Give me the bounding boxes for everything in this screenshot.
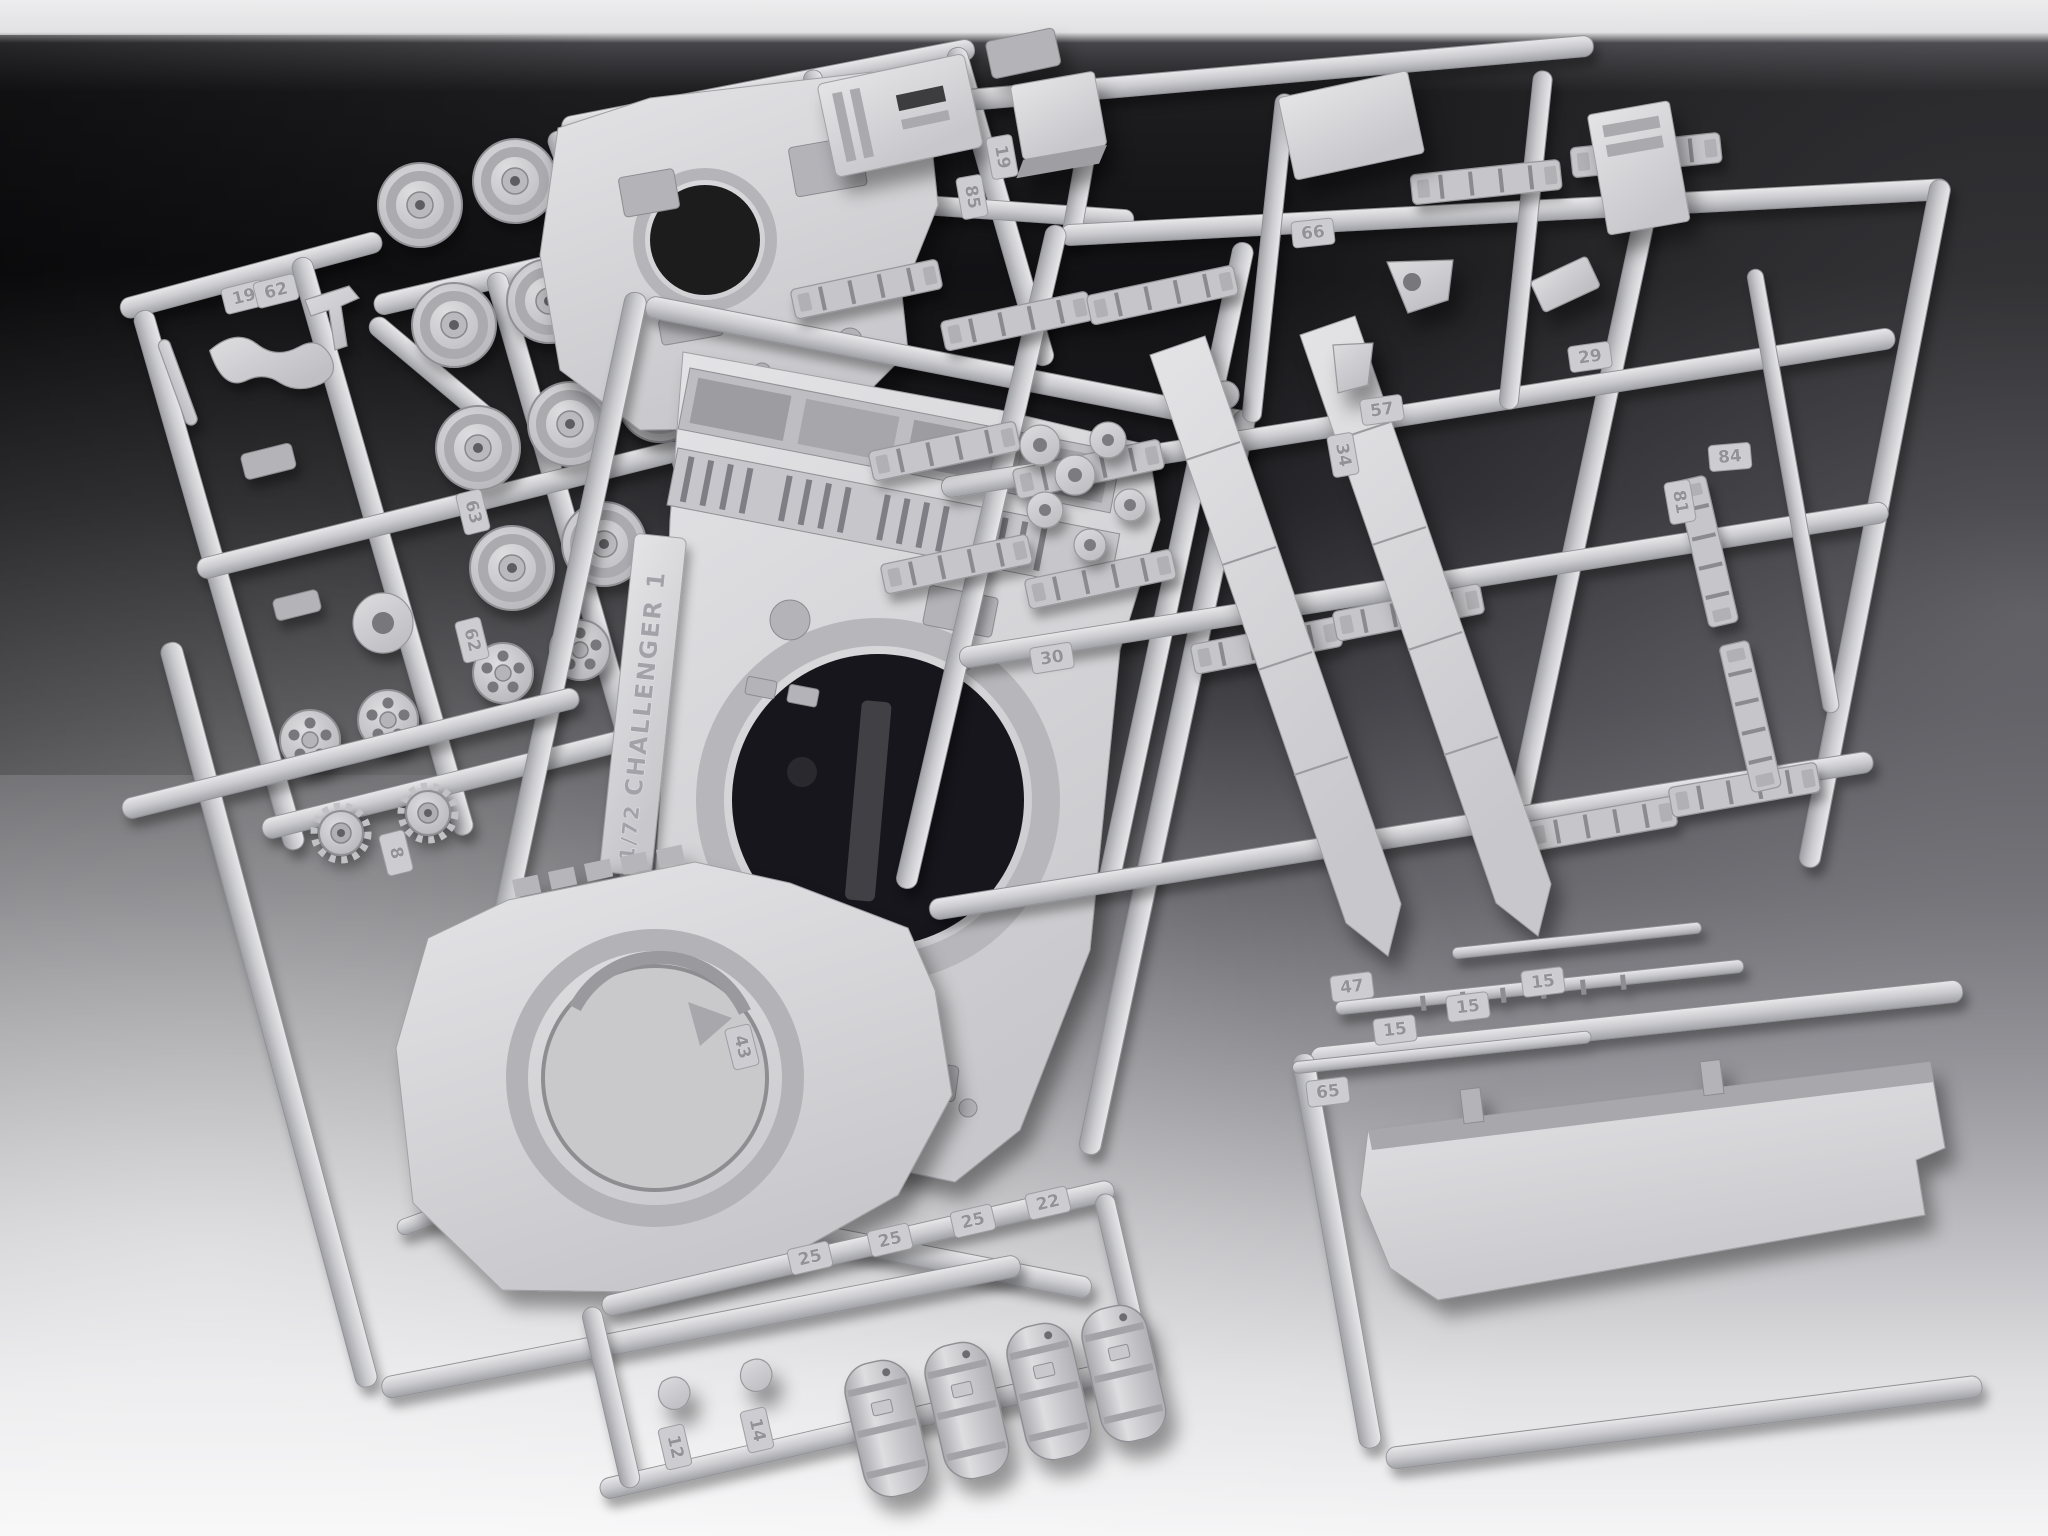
part-number-text: 47 <box>1339 976 1365 999</box>
part-number-tag: 84 <box>1708 442 1752 472</box>
part-number-tag: 29 <box>1567 341 1612 373</box>
part-number-text: 30 <box>1039 646 1066 669</box>
hub-part-hole <box>372 612 394 634</box>
part-number-text: 84 <box>1717 446 1742 468</box>
road-wheel <box>412 283 496 367</box>
part-number-tag: 47 <box>1330 972 1375 1003</box>
part-number-text: 29 <box>1577 345 1603 368</box>
part-number-text: 81 <box>1668 489 1692 516</box>
part-number-tag: 15 <box>1446 992 1491 1023</box>
bracket-part <box>1333 343 1373 393</box>
road-wheel <box>436 406 520 490</box>
photo-stage: CHALLENGER 1 1/72 <box>0 0 2048 1536</box>
clamp-part <box>658 1377 690 1410</box>
part-number-tag: 15 <box>1521 967 1566 998</box>
part-number-text: 85 <box>960 184 984 211</box>
belly-panel-lug <box>1460 1088 1484 1124</box>
belly-panel-lug <box>1700 1060 1724 1096</box>
part-number-text: 65 <box>1315 1081 1341 1104</box>
part-number-text: 66 <box>1300 222 1326 244</box>
part-number-tag: 65 <box>1306 1077 1351 1108</box>
sprue-photo: CHALLENGER 1 1/72 <box>0 0 2048 1536</box>
road-wheel <box>473 139 557 223</box>
part-number-text: 15 <box>1530 971 1556 994</box>
inner-structure-hole <box>787 757 817 787</box>
part-number-tag: 66 <box>1291 218 1335 248</box>
part-number-tag: 15 <box>1373 1015 1418 1046</box>
part-number-tag: 57 <box>1359 394 1404 426</box>
clamp-part <box>740 1359 772 1392</box>
part-number-text: 19 <box>990 144 1014 171</box>
part-number-text: 34 <box>1331 442 1355 469</box>
part-number-text: 15 <box>1382 1019 1408 1042</box>
road-wheel <box>378 163 462 247</box>
road-wheel <box>470 526 554 610</box>
part-number-text: 57 <box>1369 398 1395 421</box>
part-number-text: 15 <box>1455 996 1481 1019</box>
